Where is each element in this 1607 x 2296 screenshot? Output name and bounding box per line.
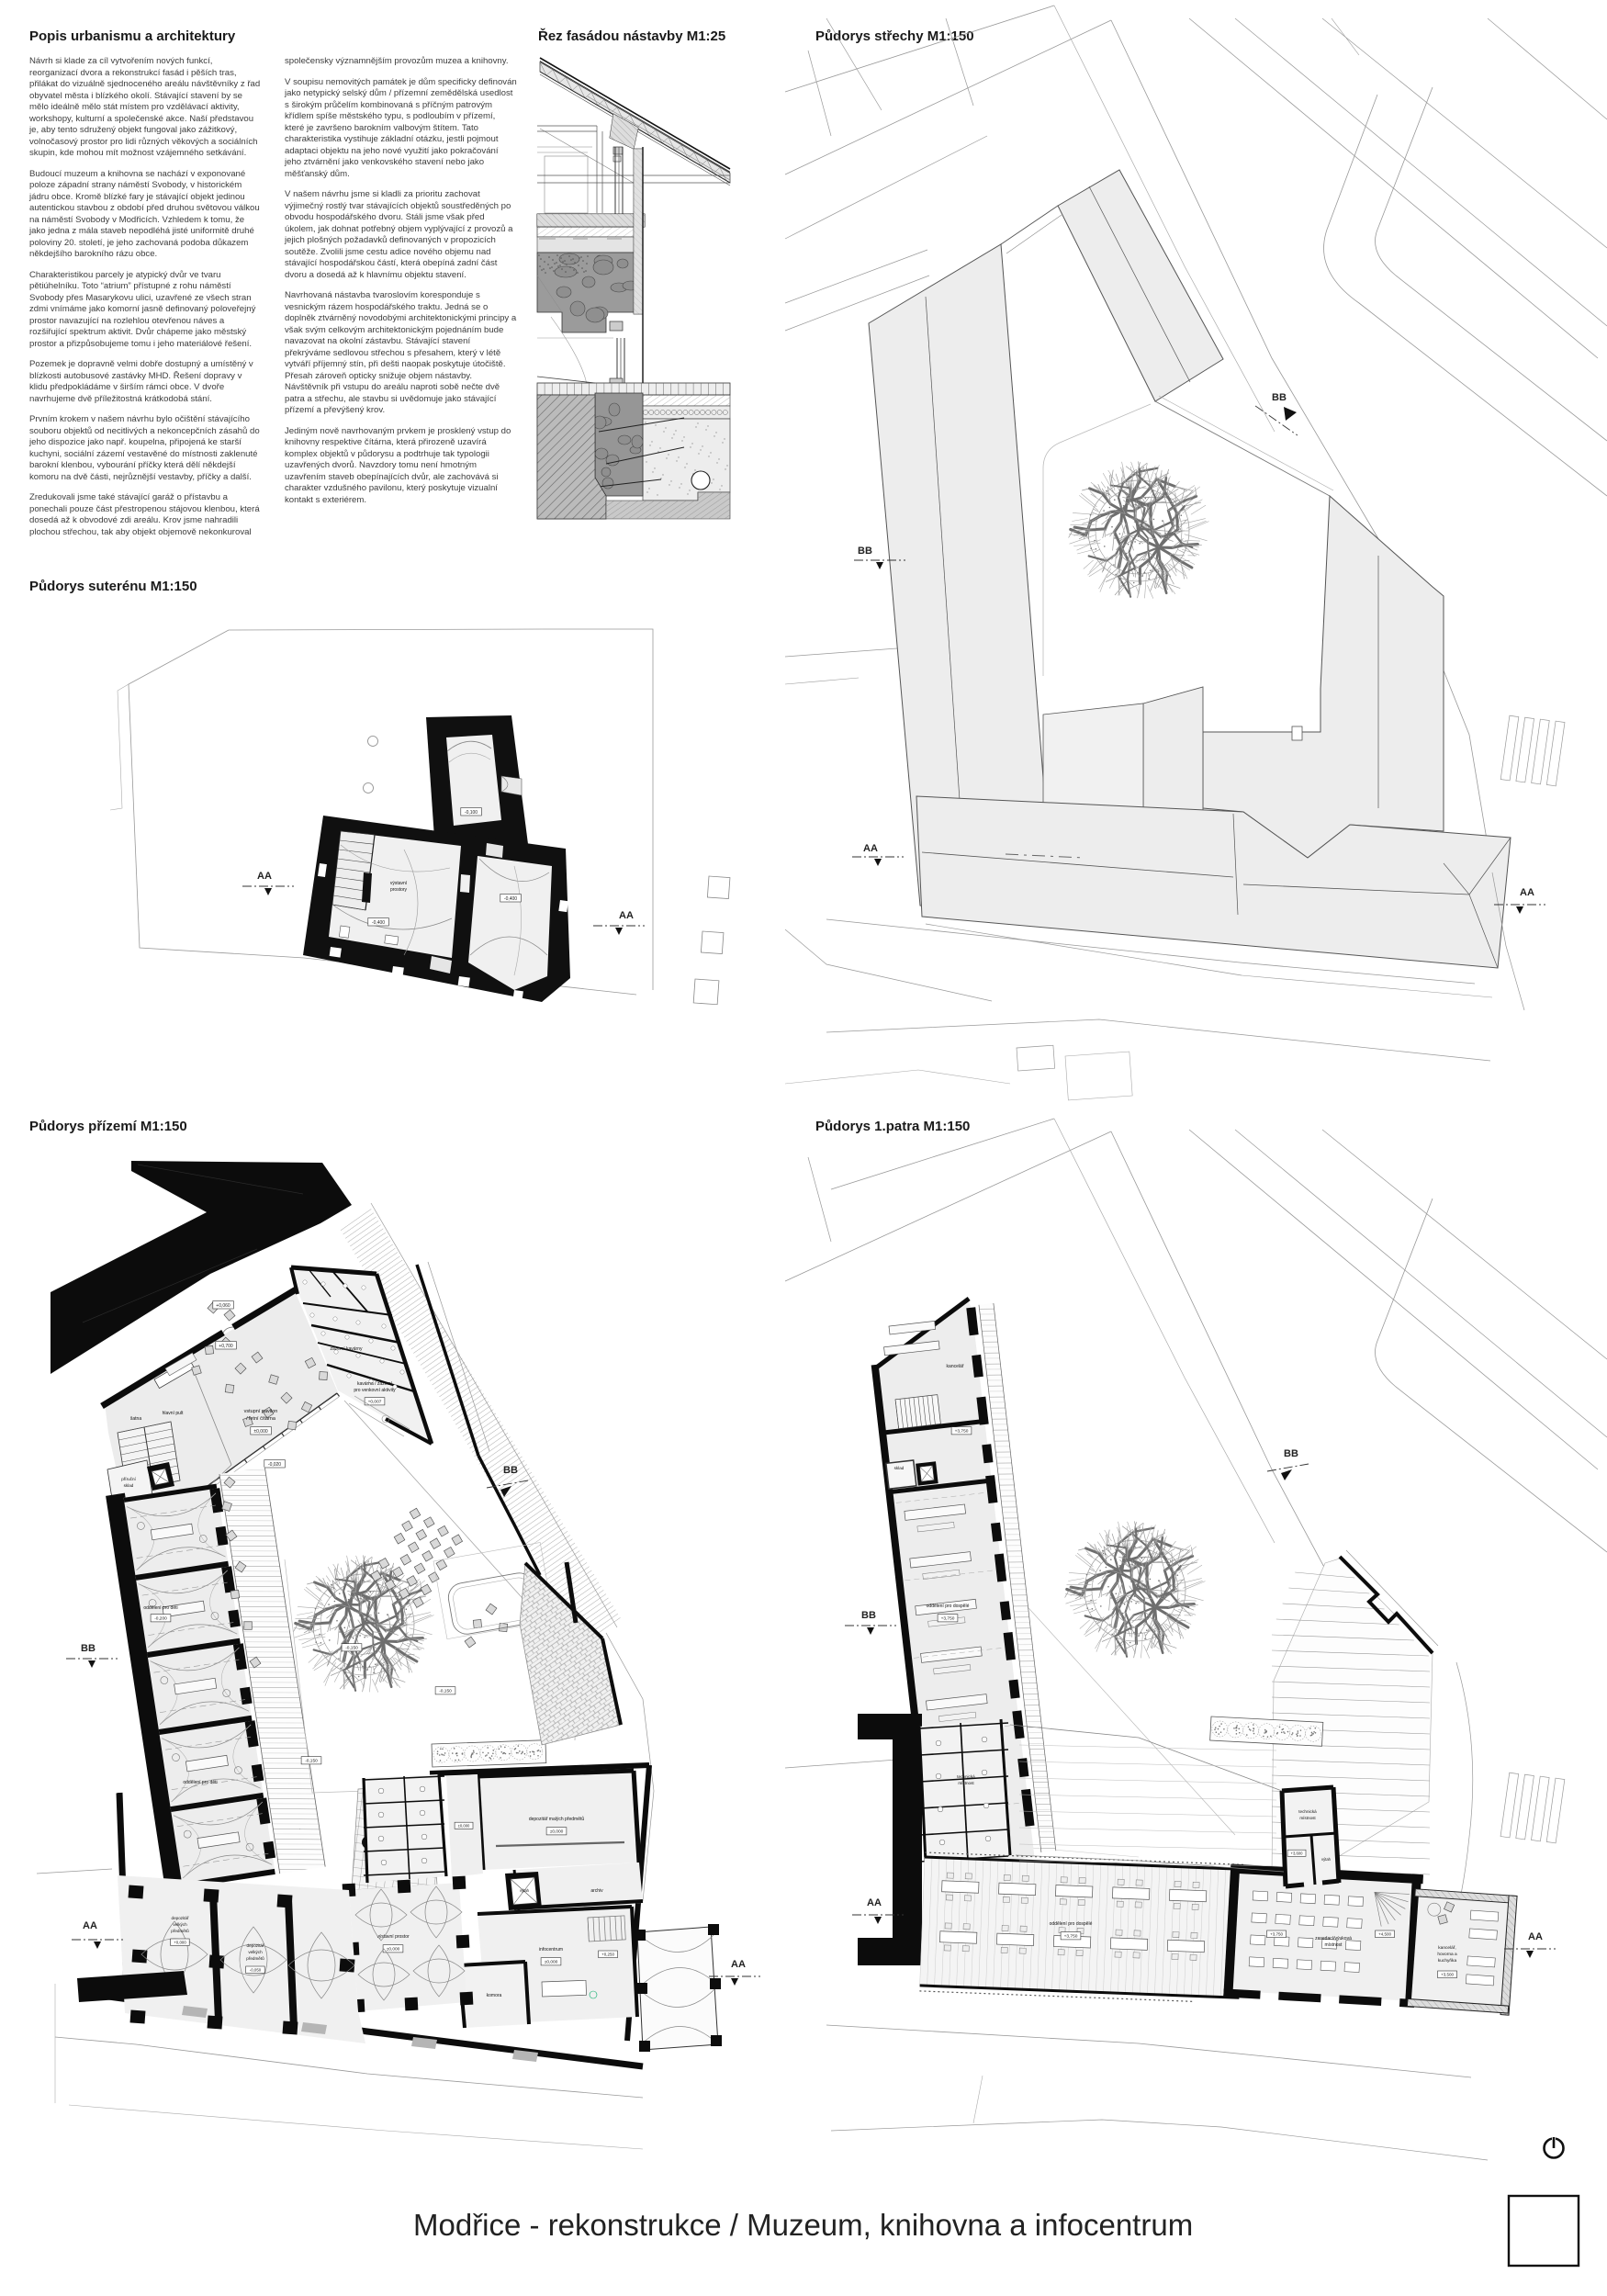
svg-text:oddělení pro dospělé: oddělení pro dospělé [927,1604,970,1609]
svg-text:AA: AA [863,843,878,854]
svg-text:archiv: archiv [590,1888,603,1894]
svg-text:oddělení pro děti: oddělení pro děti [143,1605,177,1611]
svg-text:šatna: šatna [130,1416,141,1422]
svg-text:BB: BB [858,546,872,557]
svg-text:-0,150: -0,150 [345,1646,358,1651]
svg-text:infocentrum: infocentrum [539,1947,563,1953]
svg-text:AA: AA [257,871,272,882]
svg-text:sklad: sklad [124,1483,134,1488]
svg-text:výstavní prostor: výstavní prostor [376,1934,410,1940]
svg-text:+3,750: +3,750 [941,1616,955,1622]
svg-text:prostory: prostory [390,887,408,893]
svg-text:místnost: místnost [1325,1942,1343,1948]
svg-text:velkých: velkých [248,1950,263,1954]
svg-text:+3,750: +3,750 [1270,1932,1283,1937]
svg-text:výtah: výtah [520,1888,530,1893]
svg-text:BB: BB [1284,1448,1298,1459]
svg-text:technická: technická [957,1774,975,1779]
svg-text:BB: BB [1272,392,1287,403]
svg-text:BB: BB [81,1643,96,1654]
svg-text:-0,200: -0,200 [154,1616,167,1622]
svg-text:sklad: sklad [894,1466,905,1470]
svg-text:-0,400: -0,400 [504,896,517,902]
svg-text:předmětů: předmětů [246,1955,264,1961]
svg-text:výtah: výtah [1321,1857,1332,1862]
svg-text:BB: BB [861,1610,876,1621]
svg-text:-0,100: -0,100 [465,810,478,816]
svg-text:vstupní pavilon: vstupní pavilon [244,1409,278,1414]
svg-text:-0,400: -0,400 [372,920,385,926]
svg-text:AA: AA [731,1959,746,1970]
svg-text:AA: AA [619,910,634,921]
svg-text:příruční: příruční [121,1477,136,1481]
svg-text:technická: technická [1298,1809,1317,1814]
svg-text:AA: AA [1520,887,1534,898]
svg-text:předmětů: předmětů [171,1928,189,1933]
svg-text:AA: AA [83,1920,97,1931]
svg-text:+0,007: +0,007 [368,1400,382,1405]
svg-text:kuchyňka: kuchyňka [1438,1958,1457,1964]
svg-text:hlavní pult: hlavní pult [163,1411,184,1416]
svg-text:výstavní: výstavní [390,881,408,886]
svg-text:-0,150: -0,150 [305,1759,318,1764]
svg-text:+3,600: +3,600 [1291,1851,1304,1856]
svg-text:kavárna / zázemí: kavárna / zázemí [357,1381,393,1387]
svg-text:komora: komora [487,1993,502,1998]
svg-text:-0,150: -0,150 [439,1689,452,1694]
svg-text:místnost: místnost [1299,1816,1316,1820]
svg-text:+0,000: +0,000 [174,1941,186,1945]
svg-text:+4,500: +4,500 [1378,1932,1391,1937]
svg-text:±0,000: ±0,000 [458,1824,470,1829]
svg-text:+3,750: +3,750 [1064,1934,1078,1940]
svg-text:+0,700: +0,700 [219,1344,233,1349]
svg-text:místnost: místnost [958,1781,974,1785]
svg-text:depozitář: depozitář [247,1943,264,1948]
svg-text:depozitář: depozitář [172,1916,189,1920]
svg-text:+0,060: +0,060 [216,1303,230,1309]
svg-text:+0,250: +0,250 [601,1953,614,1957]
svg-text:hovorna a: hovorna a [1437,1952,1457,1957]
svg-text:/ letní čítárna: / letní čítárna [246,1416,276,1422]
svg-text:±0,000: ±0,000 [550,1829,564,1835]
svg-text:AA: AA [1528,1931,1543,1942]
svg-text:velkých: velkých [173,1922,187,1927]
svg-text:-0,020: -0,020 [268,1462,281,1468]
svg-text:depozitář malých předmětů: depozitář malých předmětů [529,1816,585,1822]
svg-text:±0,000: ±0,000 [387,1947,400,1953]
svg-text:kancelář: kancelář [947,1364,964,1369]
svg-text:BB: BB [503,1465,518,1476]
svg-text:+3,750: +3,750 [955,1429,969,1435]
svg-text:pro venkovní aktivity: pro venkovní aktivity [354,1388,396,1393]
svg-text:kancelář,: kancelář, [1438,1945,1455,1951]
svg-text:zasedací/výuková: zasedací/výuková [1315,1936,1352,1941]
svg-text:oddělení pro děti: oddělení pro děti [183,1780,217,1785]
svg-text:zázemí kavárny: zázemí kavárny [330,1346,363,1352]
svg-text:±0,000: ±0,000 [253,1429,267,1435]
svg-text:+3,500: +3,500 [1441,1973,1454,1977]
svg-text:AA: AA [867,1897,882,1908]
svg-text:±0,000: ±0,000 [545,1960,558,1965]
svg-text:oddělení pro dospělé: oddělení pro dospělé [1050,1921,1093,1927]
svg-text:-0,050: -0,050 [250,1968,262,1973]
